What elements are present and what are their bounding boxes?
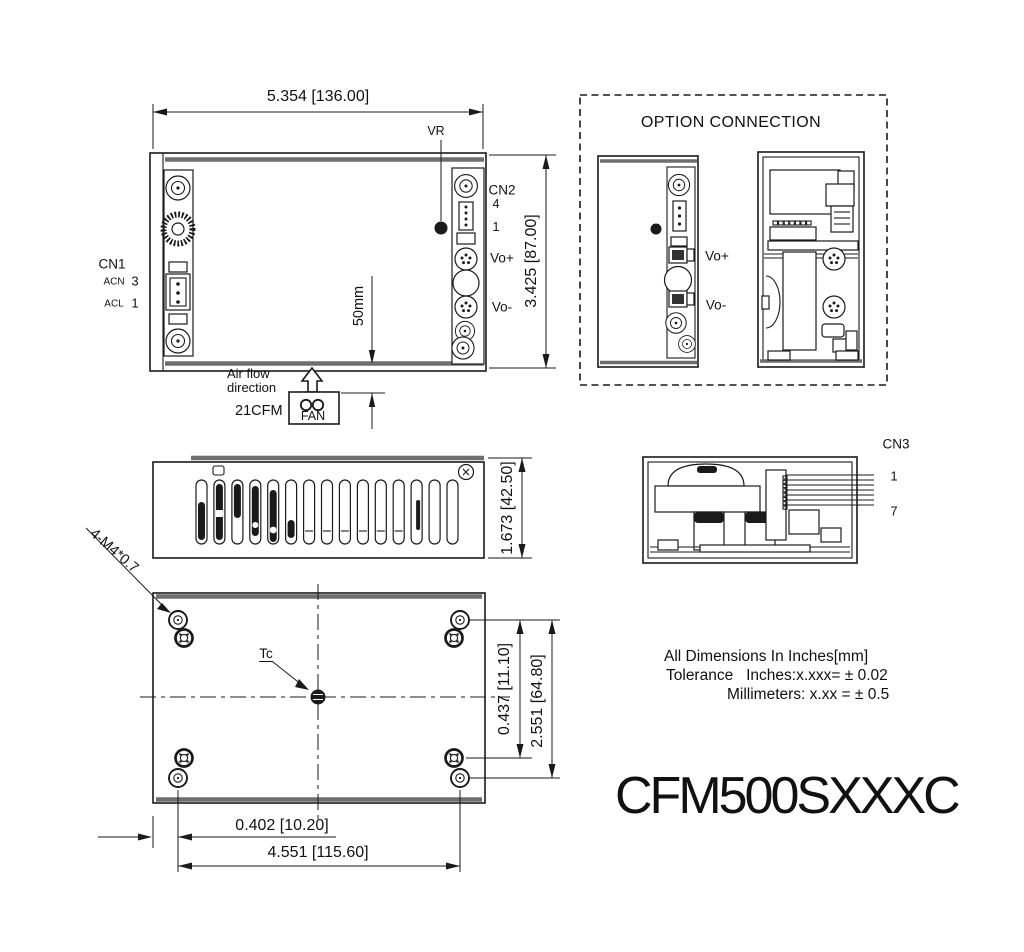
option-side-view-left xyxy=(598,156,698,367)
cn3-pin1-label: 1 xyxy=(890,469,897,484)
hole-offset-dimension-label: 0.437 [11.10] xyxy=(496,643,514,735)
option-vo-plus-label: Vo+ xyxy=(705,249,729,264)
vo-minus-label: Vo- xyxy=(492,300,512,315)
output-panel xyxy=(452,168,484,364)
vent-side-view xyxy=(153,458,532,558)
acn-label: ACN xyxy=(103,277,124,288)
cn2-pin1-label: 1 xyxy=(493,220,500,234)
acl-label: ACL xyxy=(104,299,123,310)
horizontal-dimension-label: 4.551 [115.60] xyxy=(267,844,368,862)
option-connection-box xyxy=(580,95,887,385)
cn3-connector xyxy=(766,470,787,540)
mounting-hole xyxy=(451,769,469,787)
option-connection-title: OPTION CONNECTION xyxy=(641,114,821,132)
vr-label: VR xyxy=(427,124,444,138)
vo-minus-lug xyxy=(669,291,694,307)
model-number: CFM500SXXXC xyxy=(615,769,958,824)
fan-flow-label: 21CFM xyxy=(235,404,283,419)
acl-pin-label: 1 xyxy=(131,296,138,311)
input-panel xyxy=(164,170,194,356)
fan-label: FAN xyxy=(301,409,325,423)
note-line2: Tolerance Inches:x.xxx= ± 0.02 xyxy=(666,668,888,684)
mounting-hole xyxy=(169,611,187,629)
top-view xyxy=(150,104,556,429)
note-line1: All Dimensions In Inches[mm] xyxy=(664,649,868,665)
top-height-dimension-label: 3.425 [87.00] xyxy=(523,214,541,307)
top-width-dimension-label: 5.354 [136.00] xyxy=(267,88,369,106)
vo-plus-terminal xyxy=(455,248,477,270)
mounting-hole xyxy=(446,750,463,767)
mounting-hole xyxy=(451,611,469,629)
airflow-label-line1: Air flow xyxy=(227,367,270,381)
vent-slots xyxy=(196,480,458,544)
mounting-hole xyxy=(446,630,463,647)
mounting-hole xyxy=(176,630,193,647)
acn-pin-label: 3 xyxy=(131,274,138,289)
cn2-pin4-label: 4 xyxy=(493,197,500,211)
mounting-hole xyxy=(169,769,187,787)
cn3-label: CN3 xyxy=(882,437,909,452)
mechanical-drawing: 5.354 [136.00] VR CN2 4 1 Vo+ Vo- 3.425 … xyxy=(0,0,1024,952)
option-side-view-right xyxy=(758,152,864,367)
note-line3: Millimeters: x.xx = ± 0.5 xyxy=(727,687,889,703)
vo-plus-label: Vo+ xyxy=(490,251,514,266)
vertical-dimension-label: 2.551 [64.80] xyxy=(529,654,547,747)
vr-dot xyxy=(651,224,662,235)
cn1-connector xyxy=(166,274,190,310)
fan-distance-label: 50mm xyxy=(351,286,367,326)
option-vo-minus-label: Vo- xyxy=(706,298,726,313)
mounting-hole xyxy=(176,750,193,767)
vo-plus-lug xyxy=(669,247,694,263)
cn3-side-view xyxy=(643,457,874,563)
tc-label: Tc xyxy=(259,646,273,662)
cn1-label: CN1 xyxy=(98,257,125,272)
cn3-wires xyxy=(786,475,874,505)
cn2-connector xyxy=(459,202,473,230)
cn3-pin7-label: 7 xyxy=(890,504,897,519)
edge-offset-dimension-label: 0.402 [10.20] xyxy=(235,817,328,835)
vo-minus-terminal xyxy=(455,296,477,318)
airflow-label-line2: direction xyxy=(227,381,276,395)
cn2-label: CN2 xyxy=(488,183,515,198)
vent-height-dimension-label: 1.673 [42.50] xyxy=(499,461,517,554)
